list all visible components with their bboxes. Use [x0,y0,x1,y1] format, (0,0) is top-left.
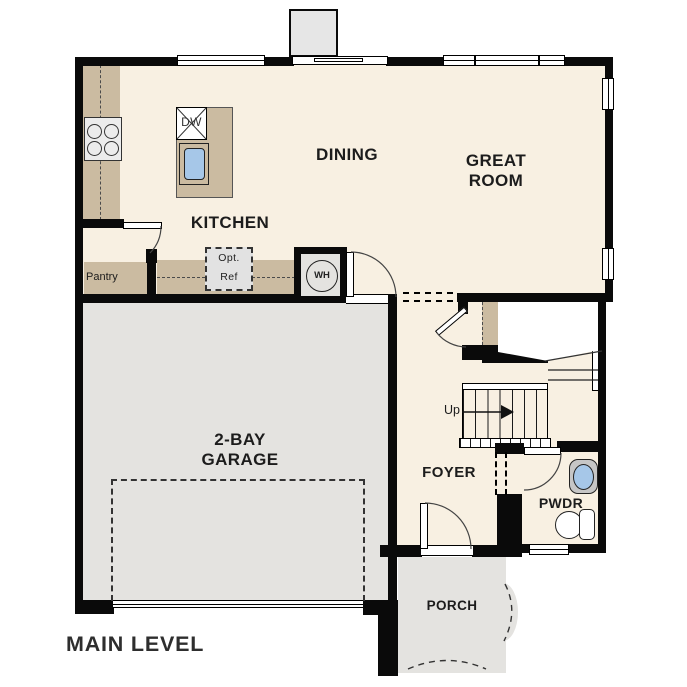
opt-ref-label-1: Opt. [205,252,253,264]
wall-porch-left [378,600,398,676]
front-door-leaf [420,503,428,549]
level-title: MAIN LEVEL [66,632,286,657]
room-label-garage: 2-BAY GARAGE [178,430,302,469]
window [443,55,565,66]
room-label-dining: DINING [302,145,392,165]
dishwasher-label: DW [176,116,207,130]
wall-pantry-top [83,219,124,228]
wall-understair-a [495,443,524,454]
wall-powder-left [497,494,522,548]
wall-pantry-right [147,257,156,302]
burner-icon [87,141,102,156]
wall-garage-bottom-left [75,600,114,614]
wall-top-exterior [386,57,444,66]
understair-lowwall [482,302,498,345]
window [177,55,265,66]
porch-side-step [503,583,518,641]
window [529,544,569,555]
room-label-powder: PWDR [532,495,590,511]
wall-right-exterior-lower [598,295,606,552]
cased-opening-dashes [403,292,453,294]
burner-icon [104,141,119,156]
chimney [289,9,338,57]
stair-treads [462,390,548,438]
room-label-kitchen: KITCHEN [182,213,278,233]
stair-top-rail [462,383,548,390]
powder-door-leaf [524,447,561,455]
wall-top-exterior [75,57,179,66]
window [602,78,614,110]
room-label-foyer: FOYER [417,464,481,481]
stairs-up-label: Up [434,403,460,417]
garage-door-bay-outline [111,479,365,601]
burner-icon [87,124,102,139]
wall-top-exterior [264,57,294,66]
front-door-threshold [421,545,473,556]
porch-floor [398,557,506,673]
floorplan-canvas: { "plan": { "level_label": "MAIN LEVEL",… [0,0,687,687]
island-sink [184,148,205,180]
wall-frontdoor-left [380,545,422,557]
foyer-opening-dashes [495,452,497,495]
wall-greatroom-bottom [457,293,613,302]
powder-sink-bowl [573,464,594,490]
wall-stair-top [482,352,548,363]
fireplace-inner-line [314,58,363,62]
window [602,248,614,280]
pantry-door-leaf [123,222,162,229]
room-label-great-room: GREAT ROOM [448,151,544,190]
toilet-tank-icon [579,509,595,540]
wall-kitchen-bottom [83,294,296,303]
opt-ref-label-2: Ref [205,271,253,283]
room-label-pantry: Pantry [86,271,146,284]
burner-icon [104,124,119,139]
cased-opening-dashes [403,300,453,302]
water-heater-icon: WH [306,260,338,292]
wall-left-exterior [75,57,83,614]
garage-door-panel [113,600,363,608]
garage-entry-door-leaf [346,252,354,297]
room-label-porch: PORCH [420,598,484,614]
foyer-opening-dashes [505,452,507,495]
wall-understair-b [557,441,598,452]
